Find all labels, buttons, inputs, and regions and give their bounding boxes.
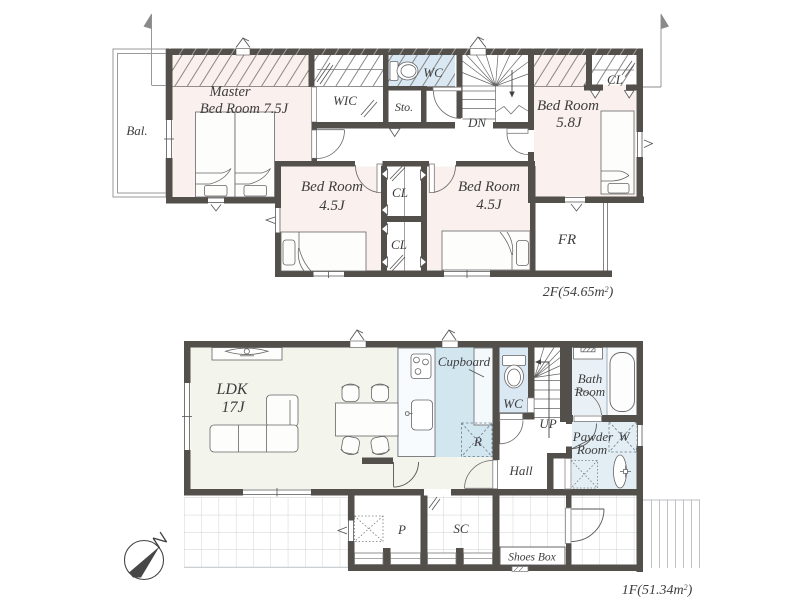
svg-text:CL: CL	[392, 185, 408, 200]
svg-text:LDK: LDK	[215, 381, 248, 398]
svg-text:UP: UP	[539, 416, 556, 431]
svg-text:CL: CL	[607, 72, 623, 87]
svg-text:Sto.: Sto.	[395, 100, 413, 114]
svg-text:W: W	[619, 429, 631, 444]
svg-text:Cupboard: Cupboard	[438, 354, 491, 369]
svg-text:Bal.: Bal.	[126, 123, 147, 138]
svg-text:Room: Room	[574, 384, 605, 399]
svg-text:P: P	[397, 522, 406, 537]
svg-text:CL: CL	[391, 237, 407, 252]
svg-text:Room: Room	[576, 442, 607, 457]
svg-text:2F(54.65m2): 2F(54.65m2)	[543, 285, 614, 300]
svg-text:WC: WC	[503, 396, 523, 411]
svg-text:R: R	[473, 434, 482, 449]
svg-text:4.5J: 4.5J	[319, 198, 346, 214]
svg-text:DN: DN	[467, 115, 487, 130]
svg-text:SC: SC	[453, 521, 469, 536]
svg-text:Bed Room: Bed Room	[458, 179, 520, 195]
svg-text:17J: 17J	[221, 399, 245, 416]
svg-text:FR: FR	[557, 232, 576, 248]
svg-text:Bed Room: Bed Room	[537, 98, 599, 114]
svg-text:WIC: WIC	[333, 93, 357, 108]
svg-text:Master: Master	[208, 84, 250, 100]
svg-text:Hall: Hall	[508, 463, 533, 478]
svg-text:Shoes Box: Shoes Box	[508, 552, 556, 564]
svg-text:Bed Room: Bed Room	[301, 179, 363, 195]
svg-text:1F(51.34m2): 1F(51.34m2)	[622, 583, 693, 598]
svg-text:5.8J: 5.8J	[556, 115, 583, 131]
svg-text:Bed Room 7.5J: Bed Room 7.5J	[200, 101, 289, 117]
svg-text:WC: WC	[423, 65, 443, 80]
svg-text:4.5J: 4.5J	[476, 197, 503, 213]
